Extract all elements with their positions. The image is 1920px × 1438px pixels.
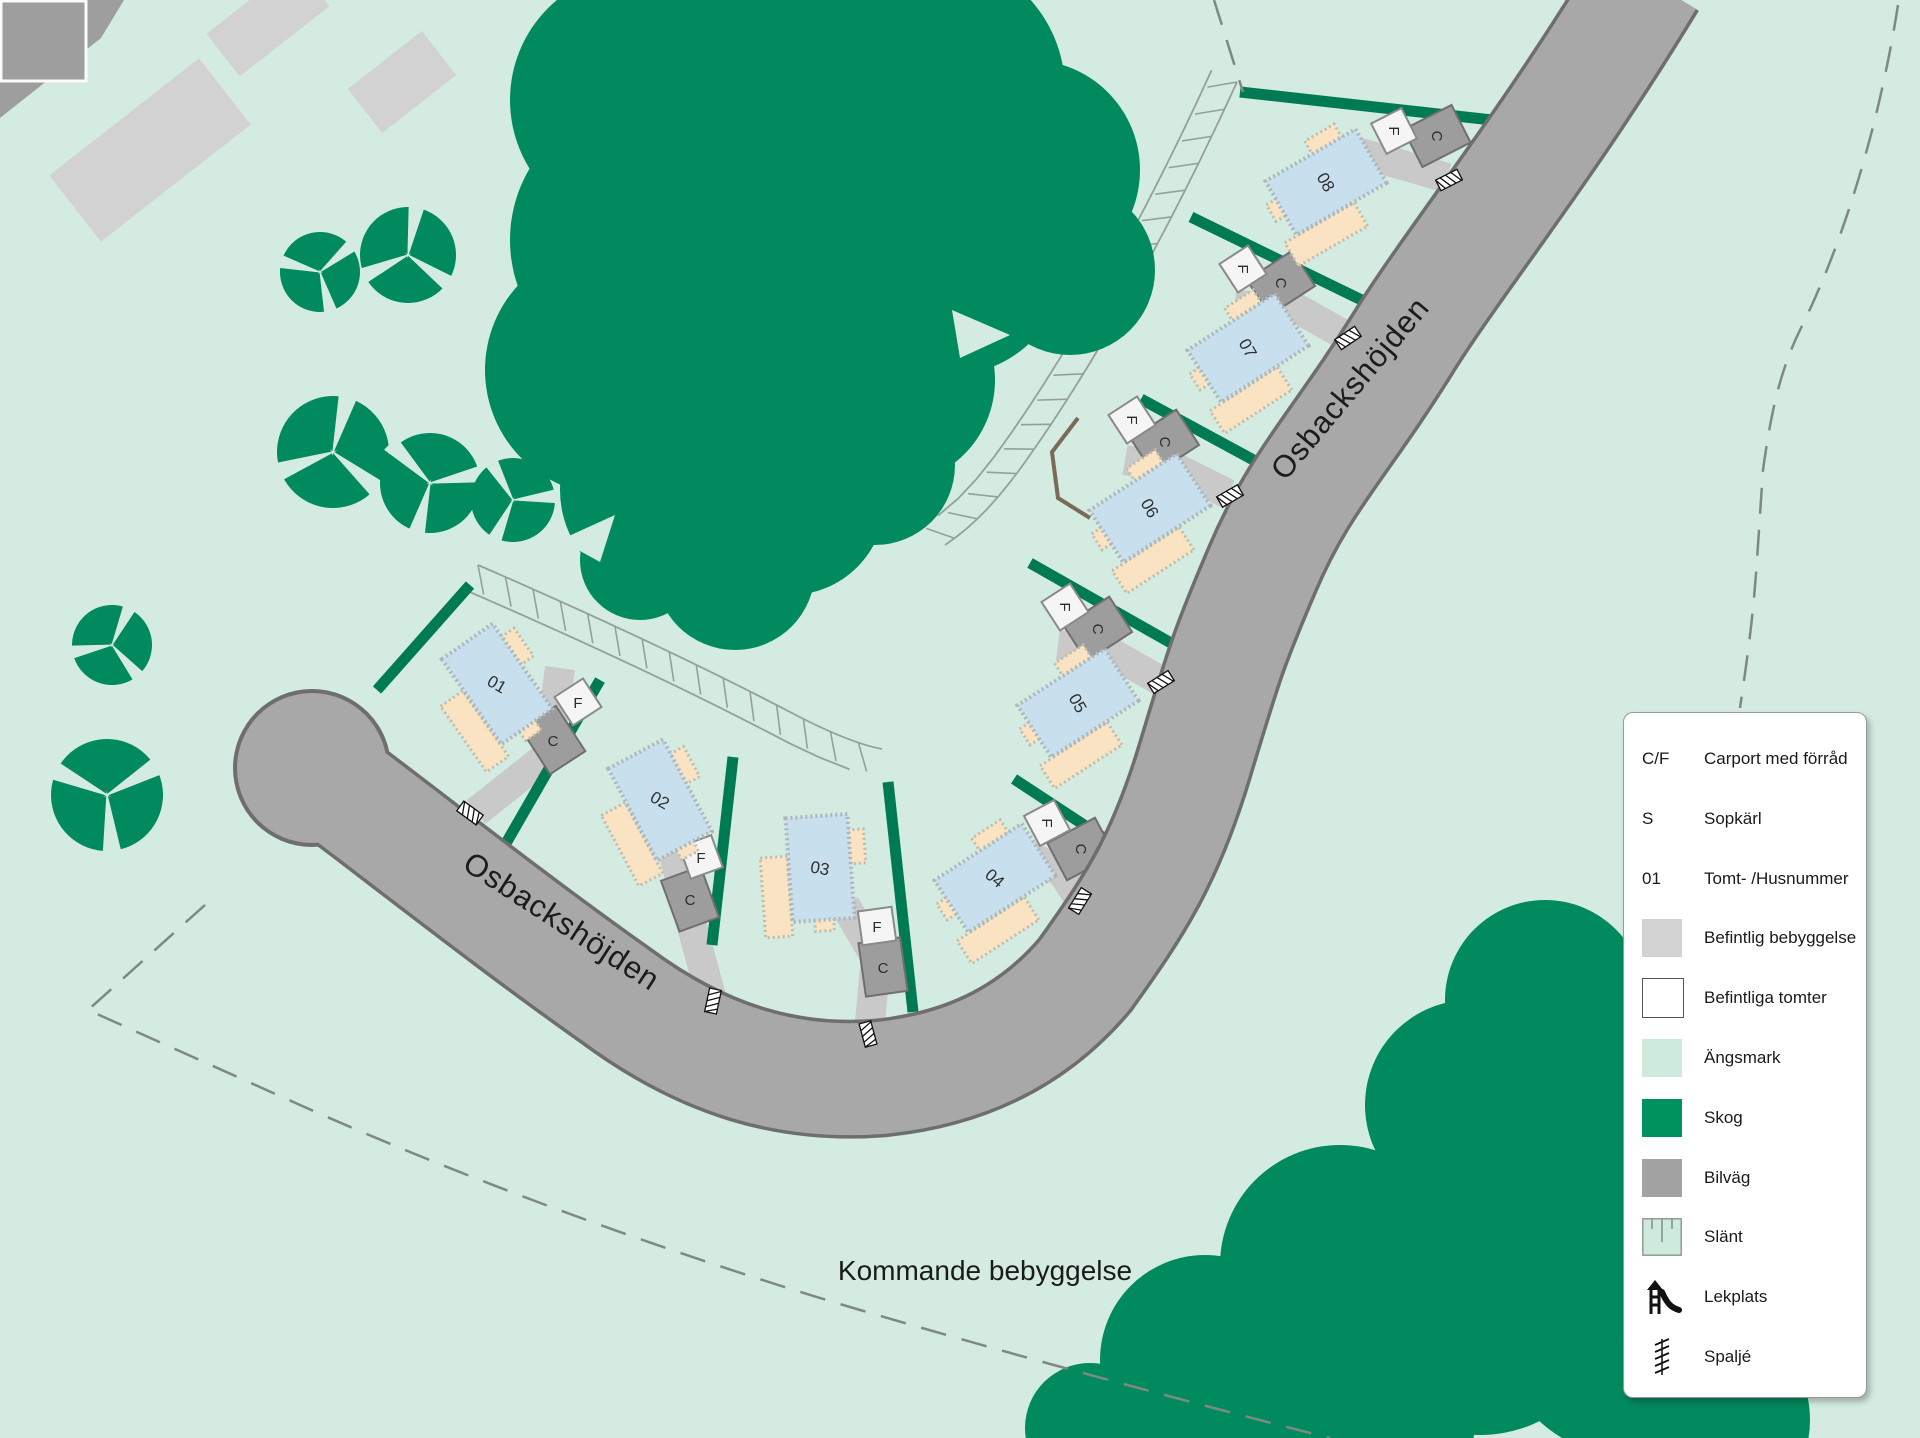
legend-label: Carport med förråd (1704, 749, 1848, 769)
legend-item-angsmark: Ängsmark (1642, 1028, 1866, 1088)
carport-label: C (685, 892, 696, 909)
legend-item-bilvag: Bilväg (1642, 1148, 1866, 1208)
existing-plot-outline (1, 1, 86, 81)
legend-symbol: C/F (1642, 749, 1669, 769)
legend-label: Sopkärl (1704, 809, 1762, 829)
forrad-label: F (1123, 415, 1140, 424)
legend-item-husnummer: 01 Tomt- /Husnummer (1642, 849, 1866, 909)
road-swatch (1642, 1159, 1682, 1197)
carport-label: C (1272, 278, 1289, 289)
legend-item-carport: C/F Carport med förråd (1642, 729, 1866, 789)
forrad-label: F (1038, 818, 1055, 827)
legend-label: Befintlig bebyggelse (1704, 928, 1856, 948)
slope-swatch-icon (1642, 1218, 1682, 1256)
legend-symbol: 01 (1642, 869, 1661, 889)
forrad-label: F (573, 695, 582, 712)
playground-icon (1642, 1277, 1682, 1317)
carport-label: C (1089, 624, 1106, 635)
legend-label: Lekplats (1704, 1287, 1767, 1307)
forrad-label: F (1385, 126, 1402, 135)
forrad-label: F (696, 850, 705, 867)
legend-label: Skog (1704, 1108, 1743, 1128)
legend-item-lekplats: Lekplats (1642, 1267, 1866, 1327)
forrad-label: F (872, 919, 881, 936)
white-swatch (1642, 978, 1684, 1018)
legend-label: Tomt- /Husnummer (1704, 869, 1849, 889)
legend: C/F Carport med förråd S Sopkärl 01 Tomt… (1623, 712, 1867, 1398)
carport-label: C (1072, 844, 1089, 855)
forrad-label: F (1234, 264, 1251, 273)
gray-swatch (1642, 919, 1682, 957)
site-plan: C F C F C F C F C F C F C F C F (0, 0, 1920, 1438)
legend-item-spalje: Spaljé (1642, 1327, 1866, 1387)
forrad-label: F (1056, 602, 1073, 611)
legend-item-befintlig-bebyggelse: Befintlig bebyggelse (1642, 908, 1866, 968)
forest-swatch (1642, 1099, 1682, 1137)
legend-label: Befintliga tomter (1704, 988, 1827, 1008)
legend-item-sopkarl: S Sopkärl (1642, 789, 1866, 849)
legend-item-skog: Skog (1642, 1088, 1866, 1148)
legend-item-befintliga-tomter: Befintliga tomter (1642, 968, 1866, 1028)
carport-label: C (1428, 131, 1445, 142)
legend-symbol: S (1642, 809, 1653, 829)
legend-label: Slänt (1704, 1227, 1743, 1247)
legend-item-slant: Slänt (1642, 1208, 1866, 1268)
legend-label: Spaljé (1704, 1347, 1751, 1367)
house-number: 03 (809, 857, 831, 879)
future-area-label: Kommande bebyggelse (838, 1255, 1132, 1286)
legend-label: Ängsmark (1704, 1048, 1781, 1068)
legend-label: Bilväg (1704, 1168, 1750, 1188)
trellis-icon (1642, 1336, 1682, 1378)
carport-label: C (548, 733, 559, 750)
carport-label: C (878, 960, 889, 977)
carport-label: C (1156, 437, 1173, 448)
meadow-swatch (1642, 1039, 1682, 1077)
